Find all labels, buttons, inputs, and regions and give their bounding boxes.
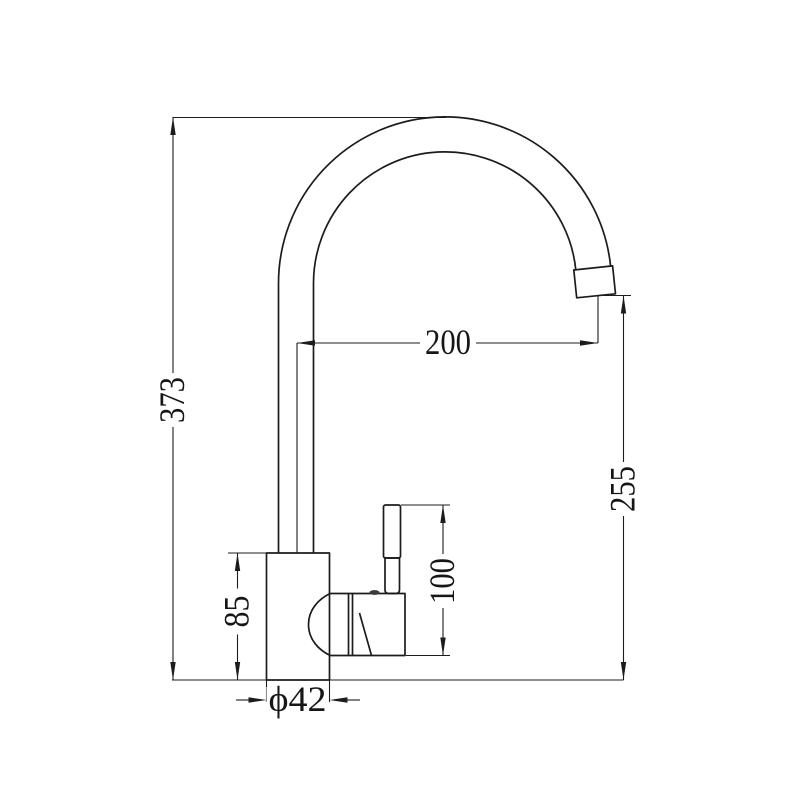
cartridge-housing [330, 594, 405, 656]
cartridge-diagonal-edge [360, 613, 372, 656]
dim-base-diameter-label: ϕ42 [269, 679, 327, 719]
dim-handle-height-label: 100 [422, 558, 462, 604]
dim-body-height-label: 85 [217, 596, 257, 628]
arrow-phi42-left [249, 697, 267, 702]
dim-overall-height-label: 373 [152, 377, 192, 423]
dim-outlet-height-label: 255 [603, 466, 643, 512]
arrow-200-right [580, 340, 598, 345]
drawing-canvas: 373 200 255 100 85 ϕ42 [0, 0, 800, 800]
arrow-200-left [297, 340, 315, 345]
handle-lever-upper [384, 505, 401, 558]
arrow-373-up [170, 117, 175, 135]
joint-dome [309, 594, 331, 656]
arrow-100-up [440, 505, 445, 523]
arrow-100-down [440, 638, 445, 656]
body-outline [267, 553, 330, 680]
arrow-373-down [170, 662, 175, 680]
aerator-tip [574, 266, 616, 298]
dimension-labels: 373 200 255 100 85 ϕ42 [152, 322, 643, 719]
arrow-255-up [621, 296, 626, 314]
lever-pivot-detail [370, 590, 380, 595]
arrow-85-up [235, 553, 240, 571]
arrow-255-down [621, 662, 626, 680]
arrow-85-down [235, 662, 240, 680]
dim-spout-reach-label: 200 [425, 322, 471, 362]
handle-lever-lower [385, 558, 400, 594]
arrow-phi42-right [330, 697, 348, 702]
faucet-technical-drawing: 373 200 255 100 85 ϕ42 [0, 0, 800, 800]
